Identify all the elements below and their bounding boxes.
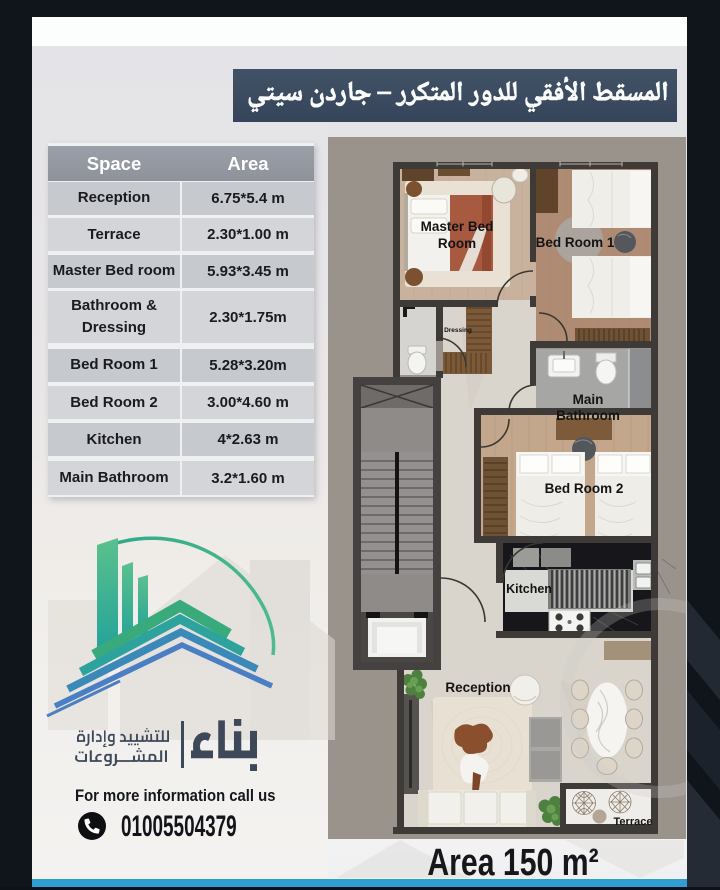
svg-text:Room: Room [438,236,476,251]
svg-text:Reception: Reception [445,680,510,695]
svg-text:Bed Room 1: Bed Room 1 [536,235,615,250]
svg-text:Dressing: Dressing [444,327,472,334]
svg-text:Kitchen: Kitchen [506,582,552,596]
svg-text:Main: Main [573,392,604,407]
svg-text:Bathroom: Bathroom [556,408,620,423]
svg-text:Terrace: Terrace [614,816,653,828]
svg-text:Bed Room 2: Bed Room 2 [545,481,624,496]
svg-text:Master Bed: Master Bed [421,219,494,234]
